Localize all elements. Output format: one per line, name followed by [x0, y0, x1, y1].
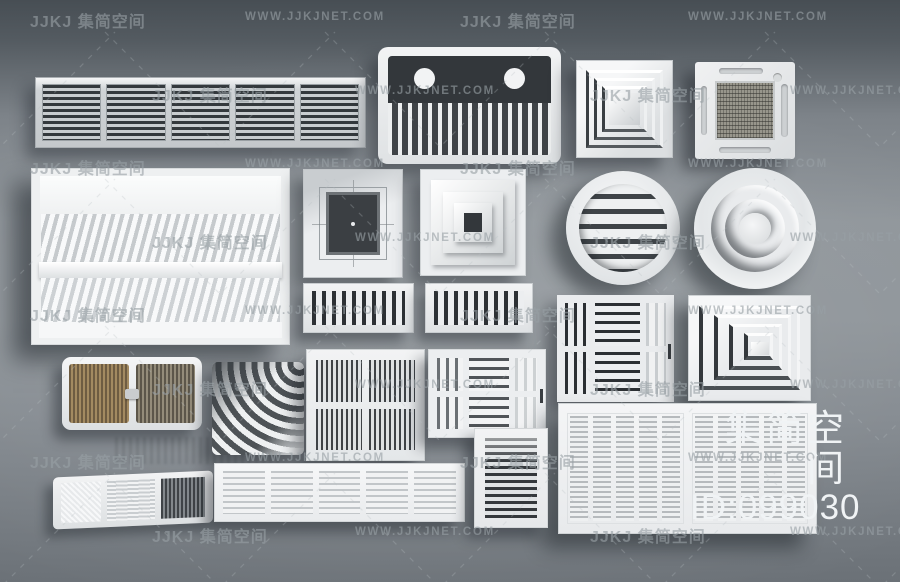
round-hole [414, 68, 435, 89]
slat-column [42, 84, 101, 141]
vertical-slots [434, 291, 524, 325]
brand-overlay: 集简空间 ID:099030 [690, 409, 848, 526]
louver-band-lower [41, 278, 280, 326]
center-handle [125, 389, 139, 399]
fine-slat-section [107, 479, 155, 521]
vent-linear-return-grille-wide [35, 77, 366, 148]
vent-wedge-floor [53, 471, 213, 530]
watermark-site-text: WWW.JJKJNET.COM [245, 11, 385, 23]
slat-panel [369, 409, 415, 451]
watermark-logo-text: JJKJ 集简空间 [152, 523, 268, 547]
vent-round-louver [566, 171, 680, 285]
horizontal-fins [469, 397, 509, 430]
vent-multi-section-register-dark [557, 295, 674, 402]
louver-slats [579, 184, 667, 272]
diffuser-center [464, 213, 482, 232]
vent-ceiling-cassette-ac [695, 62, 795, 159]
vent-vertical-slat-grille-small [474, 428, 548, 528]
intake-mesh [715, 81, 775, 140]
model-id: ID:099030 [690, 489, 848, 526]
cone-dome [739, 213, 771, 244]
watermark-logo-text: JJKJ 集简空间 [30, 8, 146, 32]
bottom-lip [39, 322, 282, 338]
air-slot [781, 84, 788, 137]
slat-column [414, 471, 456, 514]
vent-multi-section-register-light [428, 349, 546, 438]
vertical-slots [312, 291, 405, 325]
slat-column [106, 84, 165, 141]
corner-knob [773, 73, 782, 82]
brand-name: 集简空间 [690, 409, 848, 489]
slat-column [300, 84, 359, 141]
slat-panel [316, 409, 362, 451]
vent-open-box-louver-large [31, 168, 290, 345]
vent-square-step-diffuser-small [576, 60, 673, 158]
vertical-fins [437, 358, 463, 391]
vent-exhaust-dual-round-comb [378, 47, 561, 164]
light-fins [646, 303, 666, 346]
light-fins [515, 358, 537, 391]
vent-quad-panel-slat [306, 349, 425, 461]
slat-column [366, 471, 408, 514]
slat-panel [369, 360, 415, 402]
watermark-logo-text: JJKJ 集简空间 [460, 8, 576, 32]
divider-shelf [39, 262, 282, 278]
air-slot [719, 147, 771, 153]
watermark-site-text: WWW.JJKJNET.COM [790, 85, 900, 97]
air-slot [701, 86, 707, 135]
horizontal-fins [595, 303, 639, 346]
vertical-fins [565, 352, 589, 395]
horizontal-slats [485, 438, 537, 518]
diffuser-center [609, 93, 640, 125]
diffuser-center [751, 342, 769, 355]
vent-curved-fin [212, 362, 304, 455]
diffuser-center [326, 192, 380, 255]
dark-panel [388, 56, 551, 103]
dark-slat-section [161, 477, 205, 519]
vent-square-diffuser-concentric [303, 169, 403, 278]
wood-slat-panel [69, 364, 129, 423]
wood-slat-panel [136, 364, 196, 423]
vertical-fins [437, 397, 463, 430]
comb-teeth [388, 103, 551, 155]
slat-column [223, 471, 265, 514]
slat-column [171, 84, 230, 141]
light-fins [646, 352, 666, 395]
vent-round-cone-diffuser [694, 168, 816, 289]
slat-panel [316, 360, 362, 402]
air-slot [719, 68, 763, 74]
vent-linear-slat-grille-long [214, 463, 465, 522]
slat-column [235, 84, 294, 141]
vent-slot-grille-right [425, 283, 533, 333]
vent-square-diffuser-pyramid [420, 169, 526, 276]
louver-band-upper [41, 214, 280, 262]
horizontal-fins [469, 358, 509, 391]
vent-corner-step-diffuser [688, 295, 811, 401]
round-hole [504, 68, 525, 89]
watermark-site-text: WWW.JJKJNET.COM [688, 11, 828, 23]
light-fins [515, 397, 537, 430]
back-wall [40, 176, 281, 218]
vent-wood-slat-rounded [62, 357, 202, 430]
slat-column [271, 471, 313, 514]
slat-column [319, 471, 361, 514]
horizontal-fins [595, 352, 639, 395]
grille-half [567, 413, 684, 524]
vertical-fins [565, 303, 589, 346]
render-canvas: JJKJ 集简空间WWW.JJKJNET.COMJJKJ 集简空间WWW.JJK… [0, 0, 900, 582]
hatch-section [61, 481, 101, 523]
vent-slot-grille-left [303, 283, 414, 333]
